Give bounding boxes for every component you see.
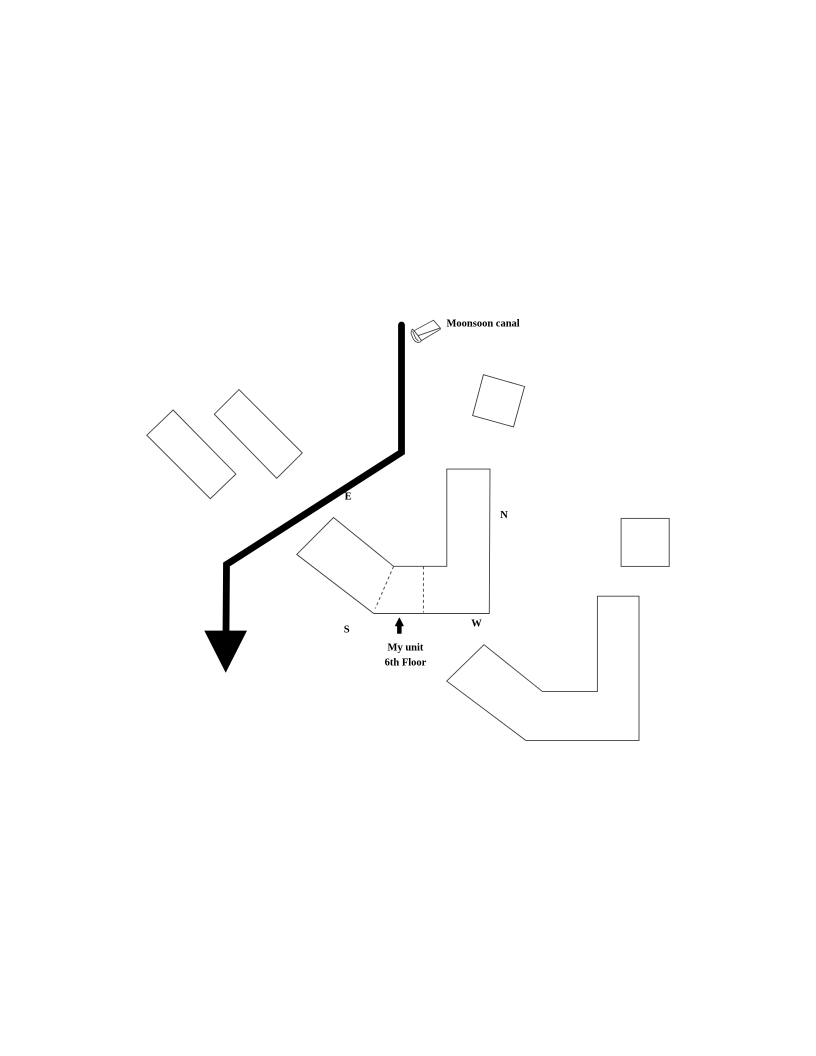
svg-text:W: W (471, 619, 482, 630)
svg-text:E: E (345, 492, 352, 503)
svg-text:6th Floor: 6th Floor (385, 658, 427, 669)
svg-text:Moonsoon canal: Moonsoon canal (447, 318, 520, 329)
svg-text:N: N (500, 510, 508, 521)
svg-text:My unit: My unit (388, 642, 424, 653)
svg-text:S: S (344, 624, 350, 635)
